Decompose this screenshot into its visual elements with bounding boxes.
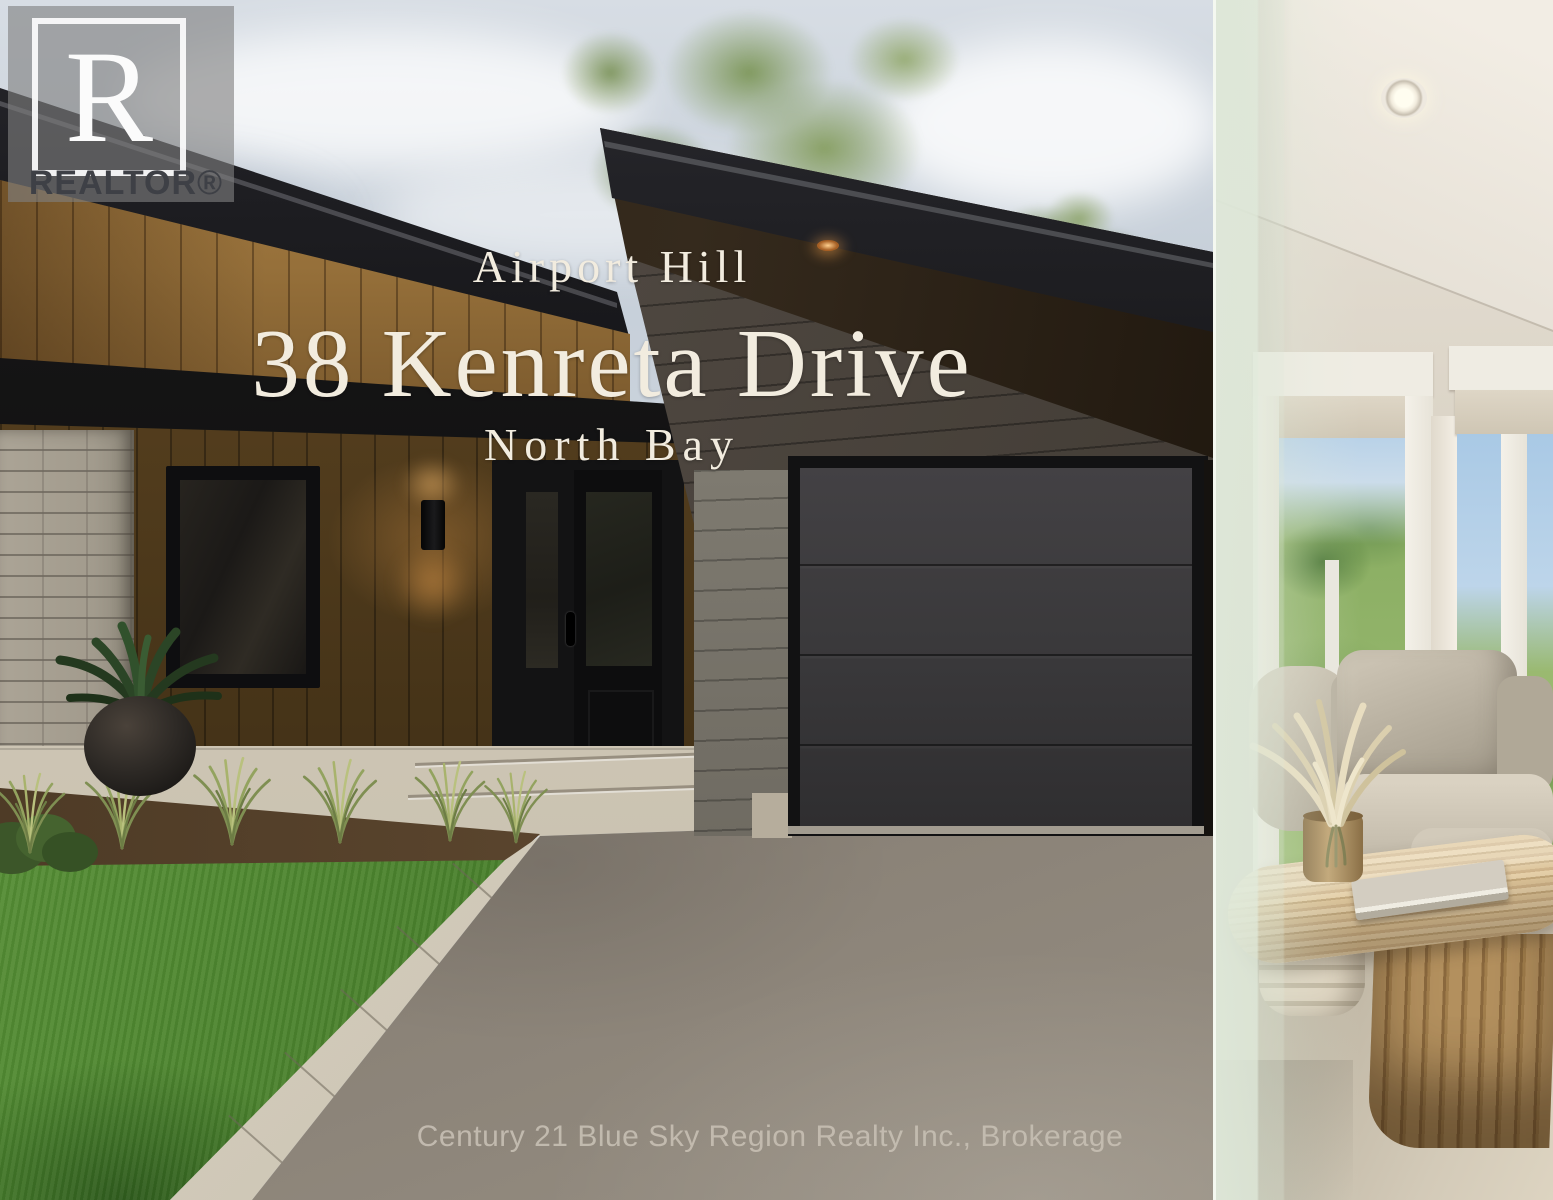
- foundation: [752, 793, 792, 838]
- sage-gradient-overlay: [1213, 0, 1383, 1200]
- garage-door: [800, 468, 1192, 826]
- realtor-label: REALTOR®: [8, 164, 244, 203]
- listing-photo-card: Airport Hill 38 Kenreta Drive North Bay …: [0, 0, 1553, 1200]
- garage-door-seam: [800, 744, 1192, 746]
- city-text: North Bay: [0, 418, 1224, 471]
- garage-door-seam: [800, 564, 1192, 566]
- garage-door-seam: [800, 654, 1192, 656]
- garage-side-return-wall: [694, 470, 790, 836]
- brokerage-credit: Century 21 Blue Sky Region Realty Inc., …: [250, 1120, 1290, 1154]
- neighborhood-text: Airport Hill: [0, 240, 1224, 293]
- coffee-table-leg: [1367, 934, 1553, 1148]
- wall-corner-shadow: [1204, 460, 1213, 836]
- sage-overlay-edge: [1213, 0, 1216, 1200]
- garage-threshold: [788, 826, 1213, 834]
- realtor-monogram-box: R: [32, 18, 186, 176]
- recessed-ceiling-light: [1381, 78, 1427, 118]
- landscaping-graphic: [0, 560, 660, 880]
- address-text: 38 Kenreta Drive: [0, 308, 1224, 419]
- roller-shade: [1455, 390, 1553, 434]
- wall-sconce: [421, 500, 445, 550]
- interior-photo: [1213, 0, 1553, 1200]
- realtor-monogram: R: [65, 31, 153, 163]
- window-header-trim: [1449, 346, 1553, 390]
- realtor-watermark: R REALTOR®: [8, 6, 234, 202]
